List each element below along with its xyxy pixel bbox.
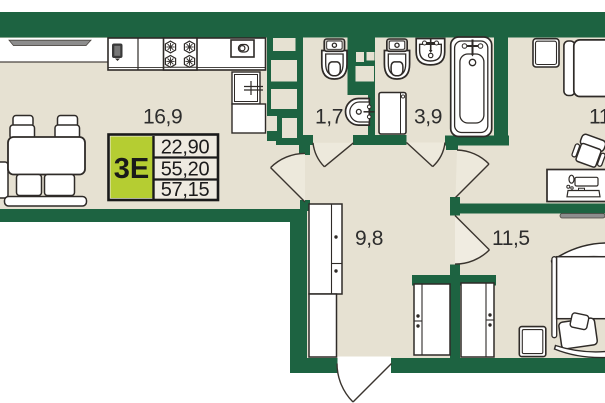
svg-text:1,7: 1,7: [315, 106, 343, 129]
svg-text:9,8: 9,8: [355, 227, 383, 250]
svg-text:57,15: 57,15: [161, 179, 210, 201]
svg-text:11,5: 11,5: [492, 227, 530, 250]
svg-text:55,20: 55,20: [161, 159, 210, 181]
svg-text:11,: 11,: [589, 106, 605, 129]
svg-text:22,90: 22,90: [161, 137, 210, 159]
svg-text:3Е: 3Е: [114, 153, 149, 185]
svg-text:16,9: 16,9: [143, 106, 182, 129]
svg-text:3,9: 3,9: [414, 106, 442, 129]
